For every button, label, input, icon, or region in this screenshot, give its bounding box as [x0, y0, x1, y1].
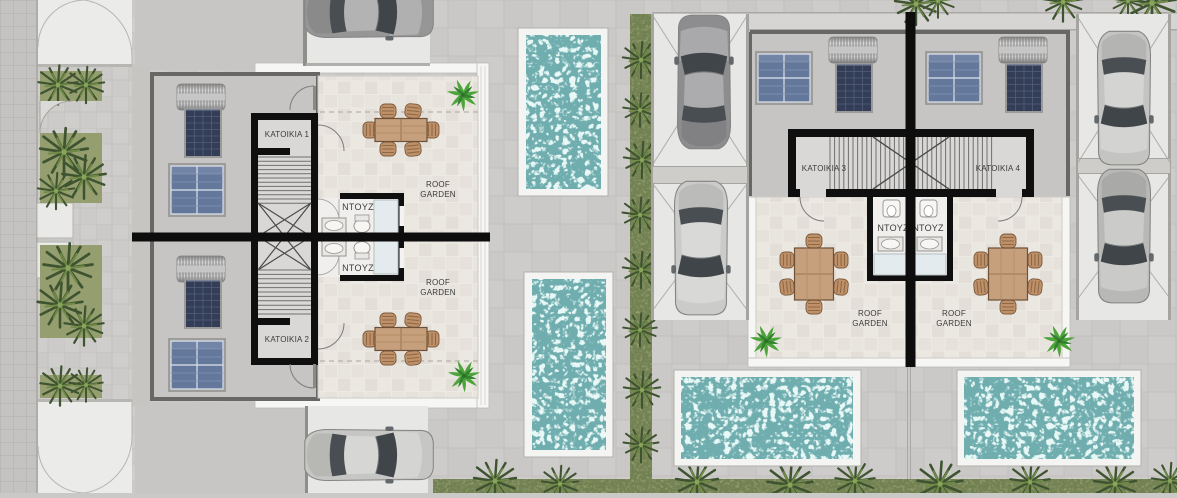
svg-text:GARDEN: GARDEN [420, 288, 455, 297]
svg-text:KATOIKIA 3: KATOIKIA 3 [802, 164, 847, 173]
svg-text:KATOIKIA 1: KATOIKIA 1 [265, 130, 310, 139]
svg-text:ROOF: ROOF [858, 309, 882, 318]
svg-text:NTOYZ: NTOYZ [342, 202, 374, 212]
svg-text:KATOIKIA 2: KATOIKIA 2 [265, 335, 310, 344]
svg-text:ROOF: ROOF [426, 278, 450, 287]
svg-text:ROOF: ROOF [942, 309, 966, 318]
svg-text:ROOF: ROOF [426, 180, 450, 189]
svg-text:GARDEN: GARDEN [936, 319, 971, 328]
svg-text:GARDEN: GARDEN [420, 190, 455, 199]
svg-text:NTOYZ: NTOYZ [342, 263, 374, 273]
svg-text:NTOYZ: NTOYZ [877, 223, 909, 233]
svg-text:NTOYZ: NTOYZ [912, 223, 944, 233]
svg-text:GARDEN: GARDEN [852, 319, 887, 328]
svg-text:KATOIKIA 4: KATOIKIA 4 [976, 164, 1021, 173]
